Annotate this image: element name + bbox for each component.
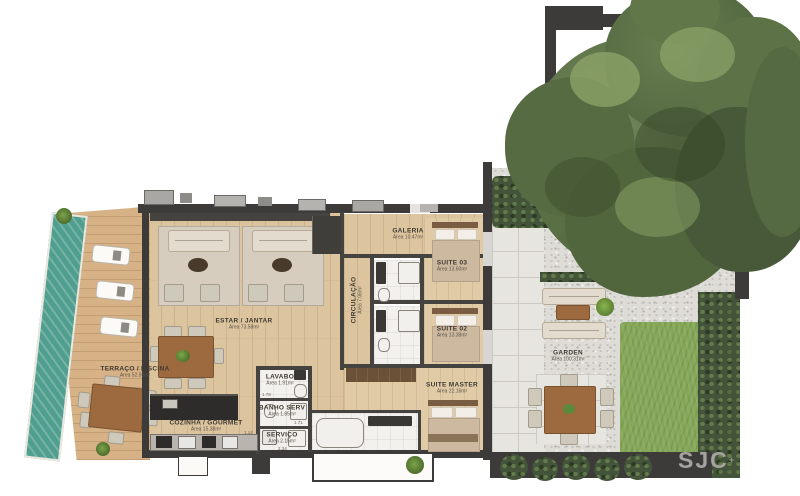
dimension-label: 1.71	[294, 420, 303, 425]
master-wardrobe	[346, 368, 416, 382]
bush-icon	[500, 454, 528, 480]
room-name: SERVIÇO	[266, 432, 297, 439]
room-name: ESTAR / JANTAR	[215, 318, 272, 325]
room-area: Área 1.85m²	[259, 412, 305, 418]
bed-headboard	[432, 222, 478, 228]
dishwasher	[222, 436, 238, 449]
room-label-banho-serv: BANHO SERV Área 1.85m²	[259, 405, 305, 418]
lavabo-sink	[294, 370, 306, 380]
garden-lawn	[620, 322, 706, 460]
wall-service-right	[308, 366, 312, 452]
coffee-table	[272, 258, 292, 272]
toilet-icon	[378, 288, 390, 302]
rooftop-equipment	[352, 200, 384, 212]
room-area: Área 7.06m²	[358, 277, 364, 324]
room-area: Área 13.38m²	[437, 333, 468, 339]
pool-lounger	[91, 244, 131, 266]
stove	[156, 436, 172, 448]
wall-baths-right	[420, 258, 424, 364]
room-name: SUITE MASTER	[426, 382, 478, 389]
shower	[398, 310, 420, 332]
shower	[398, 262, 420, 284]
sjc-logo-mark: +	[729, 455, 734, 465]
bush-icon	[594, 457, 620, 481]
room-area: Área 2.15m²	[266, 439, 297, 445]
armchair	[248, 284, 268, 302]
bed-pillow	[431, 407, 453, 418]
potted-plant-icon	[56, 208, 72, 224]
vanity	[376, 310, 386, 332]
room-name: TERRAÇO / PISCINA	[100, 366, 169, 373]
room-label-suite-02: SUITE 02 Área 13.38m²	[437, 326, 468, 339]
dining-chair	[164, 378, 182, 389]
garden-chair	[528, 388, 542, 406]
sofa	[168, 230, 230, 252]
tree-canopy-icon	[510, 0, 800, 342]
window	[483, 232, 492, 266]
window	[483, 330, 492, 364]
fridge	[202, 436, 216, 448]
service-box	[252, 454, 270, 474]
room-area: Área 22.16m²	[426, 389, 478, 395]
oven	[178, 436, 196, 449]
wall-banho-servico	[258, 426, 310, 429]
floor-plan: TERRAÇO / PISCINA Área 52.55m² ESTAR / J…	[0, 0, 800, 496]
room-label-garden: GARDEN Área 100.31m²	[551, 350, 584, 363]
room-name: GARDEN	[551, 350, 584, 357]
terrace-chair	[107, 431, 124, 445]
room-area: Área 73.58m²	[215, 325, 272, 331]
room-label-cozinha: COZINHA / GOURMET Área 15.38m²	[169, 420, 242, 433]
room-label-lavabo: LAVABO Área 1.91m²	[266, 374, 294, 387]
room-label-estar: ESTAR / JANTAR Área 73.58m²	[215, 318, 272, 331]
room-name: LAVABO	[266, 374, 294, 381]
bed-throw	[428, 434, 478, 442]
dimension-label: 1.14	[244, 430, 253, 435]
room-area: Área 15.38m²	[169, 427, 242, 433]
bed-headboard	[428, 400, 478, 406]
room-name: CIRCULAÇÃO	[351, 277, 358, 324]
bush-icon	[624, 454, 652, 480]
armchair	[164, 284, 184, 302]
room-label-servico: SERVIÇO Área 2.15m²	[266, 432, 297, 445]
rooftop-equipment	[298, 199, 326, 211]
dimension-label: 2.34	[278, 446, 287, 451]
bed-pillow	[457, 315, 477, 326]
wall-suites-divider	[372, 300, 483, 304]
pool-lounger	[99, 316, 139, 338]
bed-pillow	[435, 315, 455, 326]
island-sink	[162, 399, 178, 409]
room-label-suite-master: SUITE MASTER Área 22.16m²	[426, 382, 478, 395]
garden-chair	[528, 410, 542, 428]
armchair	[200, 284, 220, 302]
wall-master-bath-top	[310, 410, 420, 413]
room-area: Área 52.55m²	[100, 373, 169, 379]
sofa	[252, 230, 314, 252]
room-name: COZINHA / GOURMET	[169, 420, 242, 427]
dining-chair	[214, 348, 224, 364]
room-name: SUITE 03	[437, 260, 468, 267]
double-vanity	[368, 416, 412, 426]
bed-headboard	[432, 308, 478, 314]
vanity	[376, 262, 386, 284]
bush-icon	[532, 457, 558, 481]
galeria-closet	[312, 216, 341, 254]
garden-chair	[600, 388, 614, 406]
toilet-icon	[294, 384, 307, 398]
room-area: Área 100.31m²	[551, 357, 584, 363]
room-area: Área 13.60m²	[437, 267, 468, 273]
rooftop-equipment	[258, 197, 272, 206]
rooftop-equipment	[420, 204, 438, 212]
sjc-logo: SJC+	[678, 448, 734, 472]
toilet-icon	[378, 338, 390, 352]
bathtub	[316, 418, 364, 448]
bed-pillow	[435, 229, 455, 240]
pool-lounger	[95, 280, 135, 302]
room-label-suite-03: SUITE 03 Área 13.60m²	[437, 260, 468, 273]
table-centerpiece-icon	[563, 404, 575, 414]
rooftop-equipment	[180, 193, 192, 203]
room-label-circulacao: CIRCULAÇÃO Área 7.06m²	[351, 277, 364, 324]
rooftop-equipment	[214, 195, 246, 207]
room-area: Área 10.47m²	[392, 235, 423, 241]
armchair	[284, 284, 304, 302]
tv-sideboard	[150, 213, 330, 221]
sjc-logo-text: SJC	[678, 447, 729, 473]
room-name: SUITE 02	[437, 326, 468, 333]
dimension-label: 1.78	[262, 392, 271, 397]
balcony-box	[178, 456, 208, 476]
potted-plant-icon	[96, 442, 110, 456]
room-name: BANHO SERV	[259, 405, 305, 412]
room-label-terraco: TERRAÇO / PISCINA Área 52.55m²	[100, 366, 169, 379]
bed-pillow	[457, 229, 477, 240]
room-name: GALERIA	[392, 228, 423, 235]
terrace-dining-table	[88, 383, 146, 432]
coffee-table	[188, 258, 208, 272]
bush-icon	[562, 454, 590, 480]
wall-master-bath-right	[418, 410, 421, 452]
garden-chair	[600, 410, 614, 428]
table-centerpiece-icon	[176, 350, 190, 362]
wall-lavabo-banho	[258, 398, 310, 401]
wall-left	[142, 206, 149, 456]
rooftop-equipment	[144, 190, 174, 205]
room-area: Área 1.91m²	[266, 381, 294, 387]
terrace-chair	[77, 391, 91, 408]
room-label-galeria: GALERIA Área 10.47m²	[392, 228, 423, 241]
wall-corridor-right	[370, 258, 374, 368]
planter-plant-icon	[406, 456, 424, 474]
bed-pillow	[455, 407, 477, 418]
dining-chair	[188, 378, 206, 389]
